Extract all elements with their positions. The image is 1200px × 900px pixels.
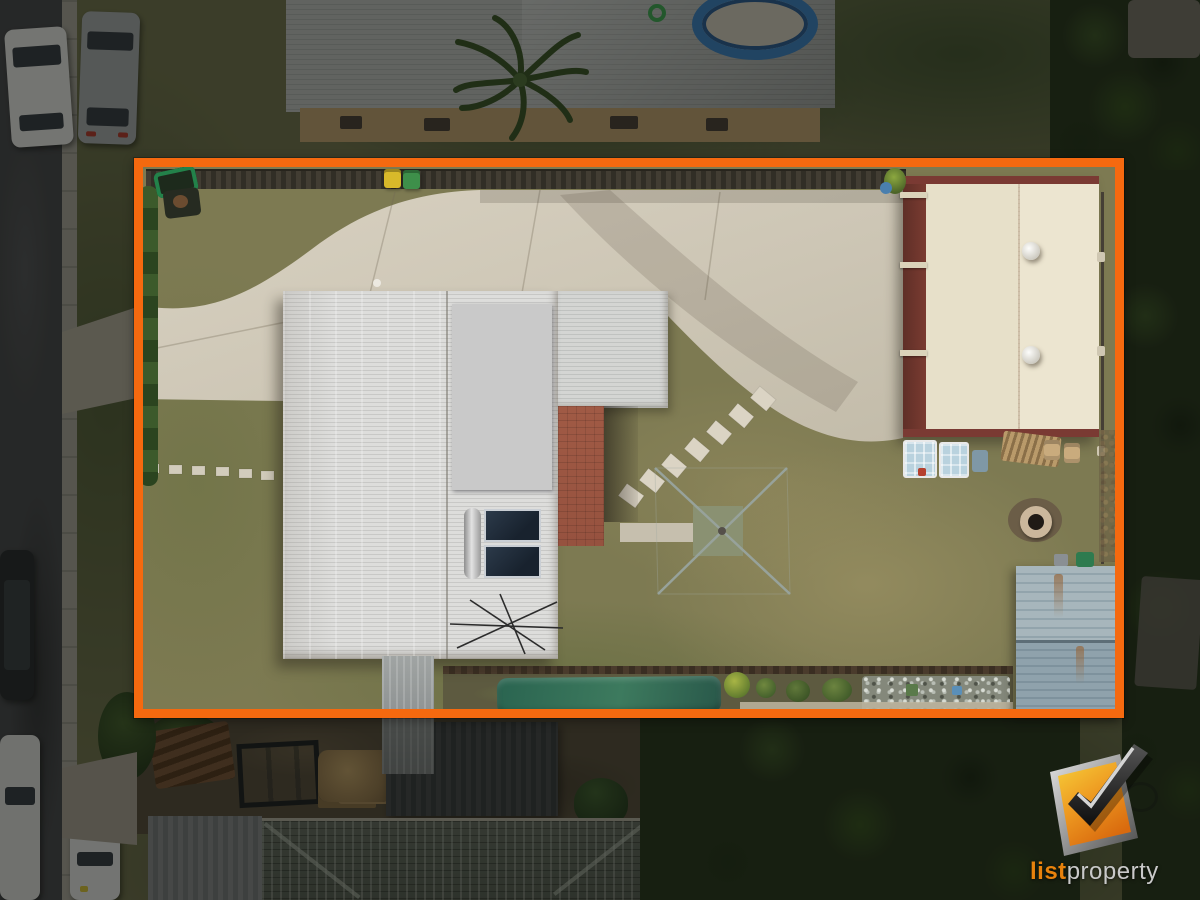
logo-text-property: property [1067,858,1159,885]
dim-overlay-top [0,0,1200,163]
dim-overlay-bottom [0,713,1200,900]
listproperty-logo-text: listproperty [1030,858,1200,886]
logo-text-list: list [1030,858,1067,885]
listproperty-logo-icon [1030,740,1200,860]
aerial-property-photo: listproperty [0,0,1200,900]
dim-overlay-right [1119,163,1200,713]
property-boundary-outline [134,158,1124,718]
dim-overlay-left [0,163,138,713]
